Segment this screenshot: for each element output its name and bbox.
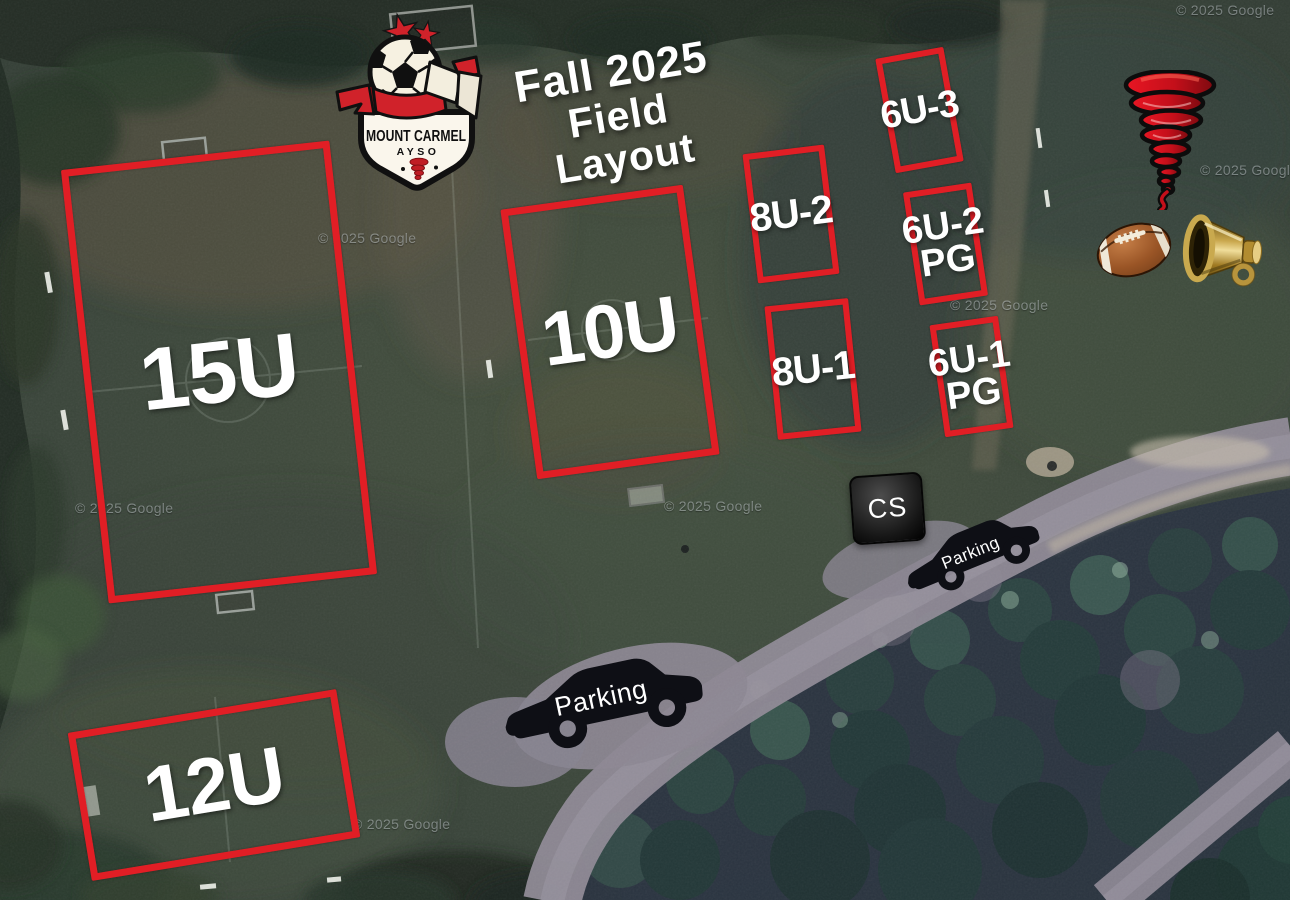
megaphone-icon [1179, 213, 1267, 287]
field-label-line2: PG [931, 371, 1017, 417]
field-layout-map: © 2025 Google © 2025 Google © 2025 Googl… [0, 0, 1290, 900]
map-attribution: © 2025 Google [664, 498, 762, 514]
map-attribution: © 2025 Google [1176, 2, 1274, 18]
field-label-10u: 10U [538, 288, 683, 376]
field-label-line2: PG [905, 238, 992, 285]
concession-stand-label: CS [867, 492, 909, 526]
field-box-8u-2: 8U-2 [742, 145, 839, 284]
field-label-6u-1: 6U-1PG [926, 336, 1017, 417]
field-box-8u-1: 8U-1 [764, 298, 861, 440]
concession-stand-marker: CS [849, 472, 927, 546]
field-label-15u: 15U [136, 323, 302, 421]
field-box-10u: 10U [500, 185, 719, 479]
field-label-12u: 12U [139, 738, 289, 831]
logo-organization: AYSO [397, 146, 440, 158]
tornado-icon [1123, 70, 1217, 210]
logo-dot [401, 167, 405, 171]
field-label-8u-1: 8U-1 [770, 347, 856, 392]
field-label-8u-2: 8U-2 [748, 191, 835, 237]
club-logo: ★ ★ MOUNT CARMEL AYSO [333, 0, 495, 200]
field-label-6u-3: 6U-3 [878, 86, 961, 134]
map-attribution: © 2025 Google [352, 816, 450, 832]
logo-dot [434, 166, 438, 170]
logo-club-name: MOUNT CARMEL [366, 128, 466, 145]
field-box-6u-1: 6U-1PG [929, 316, 1013, 438]
field-box-15u: 15U [61, 141, 377, 604]
field-label-6u-2: 6U-2PG [900, 203, 992, 284]
map-attribution: © 2025 Google [950, 297, 1048, 313]
football-icon [1094, 212, 1174, 288]
